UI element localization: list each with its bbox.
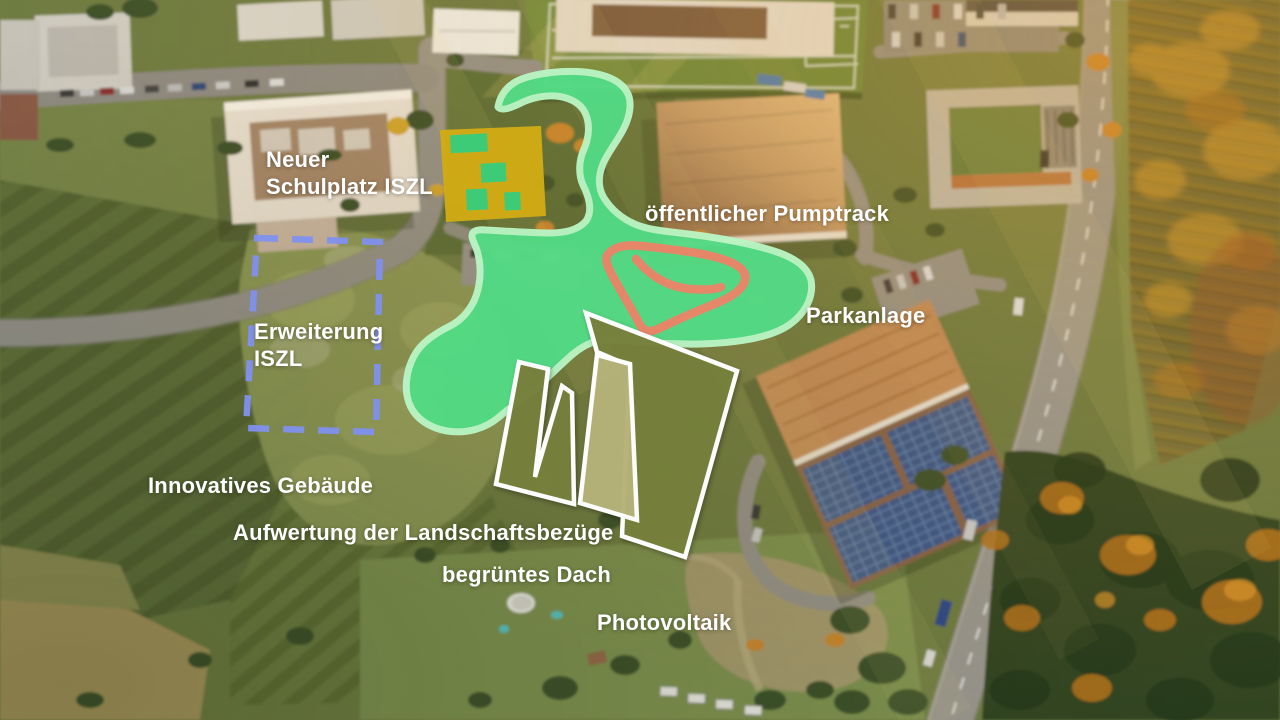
- label-erweiterung-iszl: Erweiterung ISZL: [254, 318, 383, 372]
- schoolyard-green-patch: [481, 162, 507, 182]
- schoolyard-green-patch: [450, 133, 488, 153]
- label-photovoltaik: Photovoltaik: [597, 609, 731, 636]
- label-innovatives-gebaeude: Innovatives Gebäude: [148, 472, 373, 499]
- label-neuer-schulplatz: Neuer Schulplatz ISZL: [266, 146, 433, 200]
- label-pumptrack: öffentlicher Pumptrack: [645, 200, 889, 227]
- label-parkanlage: Parkanlage: [806, 302, 925, 329]
- schoolyard-green-patch: [466, 188, 488, 210]
- schoolyard-green-patch: [504, 192, 521, 211]
- label-aufwertung-landschaftsbezuege: Aufwertung der Landschaftsbezüge: [233, 519, 613, 546]
- aerial-masterplan: Neuer Schulplatz ISZL öffentlicher Pumpt…: [0, 0, 1280, 720]
- schoolyard-overlay: [440, 126, 546, 222]
- label-begruentes-dach: begrüntes Dach: [442, 561, 611, 588]
